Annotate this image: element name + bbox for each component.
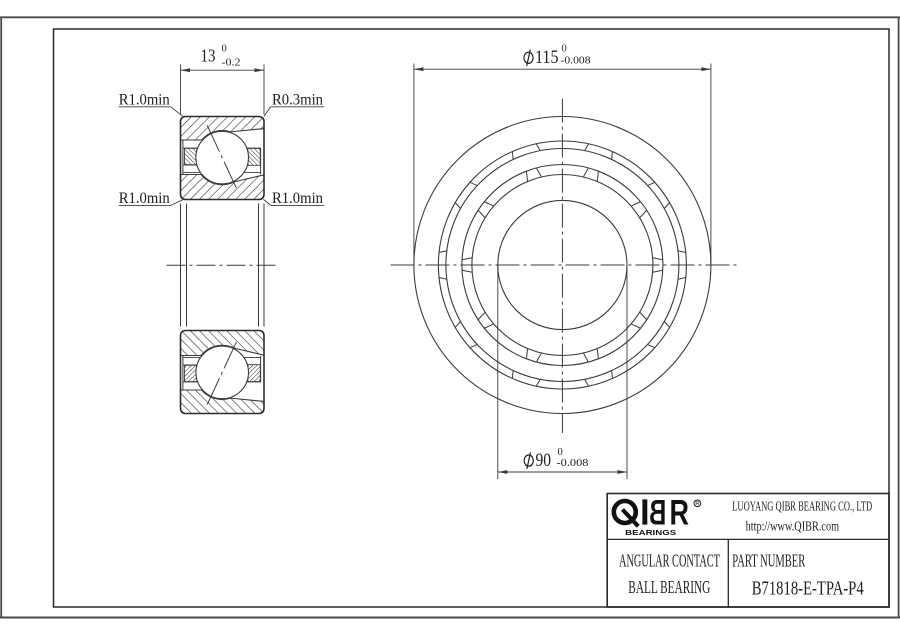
svg-text:LUOYANG QIBR BEARING CO., LTD: LUOYANG QIBR BEARING CO., LTD (732, 499, 872, 514)
svg-text:PART NUMBER: PART NUMBER (732, 551, 805, 571)
svg-text:B71818-E-TPA-P4: B71818-E-TPA-P4 (752, 578, 864, 600)
svg-text:0: 0 (558, 447, 563, 458)
svg-text:http://www.QIBR.com: http://www.QIBR.com (746, 519, 840, 534)
svg-text:0: 0 (222, 44, 227, 55)
svg-text:115: 115 (535, 47, 559, 68)
svg-text:ANGULAR CONTACT: ANGULAR CONTACT (619, 551, 720, 571)
svg-text:R1.0min: R1.0min (119, 91, 170, 108)
svg-text:-0.008: -0.008 (561, 56, 591, 67)
svg-text:13: 13 (201, 46, 216, 66)
svg-text:R1.0min: R1.0min (119, 190, 170, 207)
svg-text:90: 90 (536, 450, 552, 471)
svg-text:R: R (670, 494, 690, 533)
svg-text:-0.2: -0.2 (222, 58, 241, 69)
svg-text:0: 0 (562, 44, 567, 55)
svg-text:-0.008: -0.008 (557, 458, 589, 469)
svg-text:R0.3min: R0.3min (272, 91, 323, 108)
svg-text:R1.0min: R1.0min (272, 190, 323, 207)
svg-text:BEARINGS: BEARINGS (625, 528, 676, 537)
svg-text:BALL BEARING: BALL BEARING (628, 577, 710, 597)
svg-text:R: R (695, 501, 700, 508)
